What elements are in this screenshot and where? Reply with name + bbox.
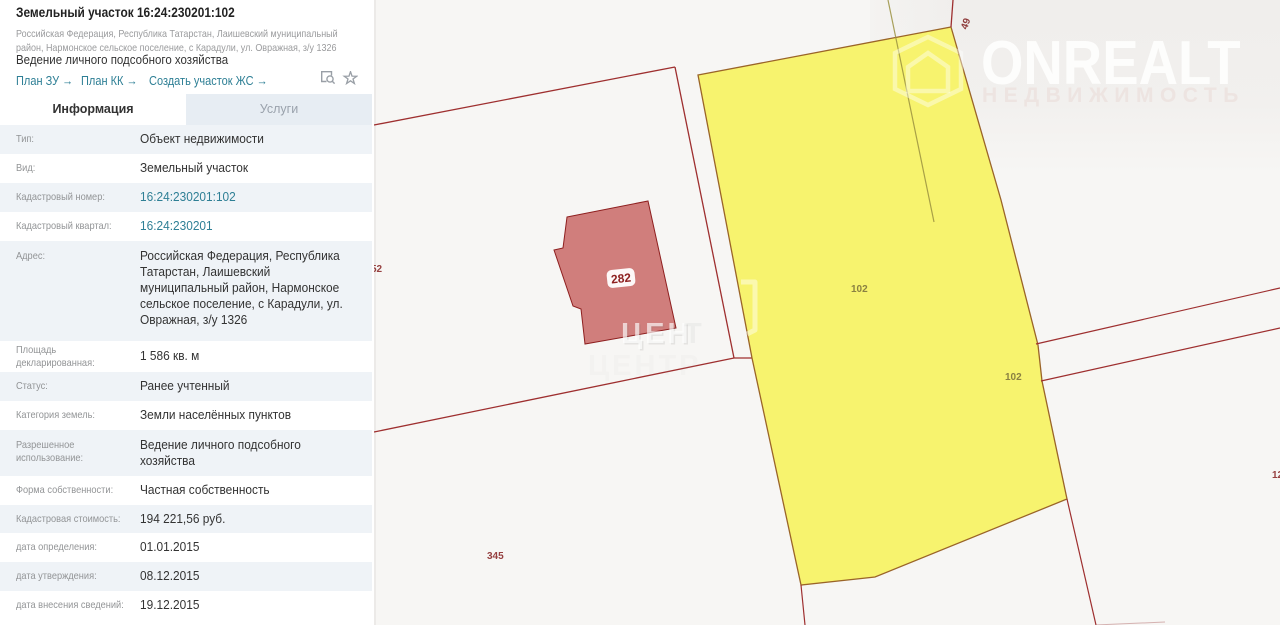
svg-text:102: 102 <box>851 284 868 295</box>
svg-text:НЕДВИЖИМОСТЬ: НЕДВИЖИМОСТЬ <box>982 84 1245 107</box>
svg-text:Т: Т <box>684 318 705 350</box>
svg-text:345: 345 <box>487 551 504 562</box>
svg-text:ЦЕНТР: ЦЕНТР <box>588 350 702 382</box>
svg-text:282: 282 <box>610 270 632 286</box>
svg-text:ЦЕН: ЦЕН <box>621 318 691 350</box>
svg-text:102: 102 <box>1005 372 1022 383</box>
svg-text:12: 12 <box>1272 470 1280 481</box>
